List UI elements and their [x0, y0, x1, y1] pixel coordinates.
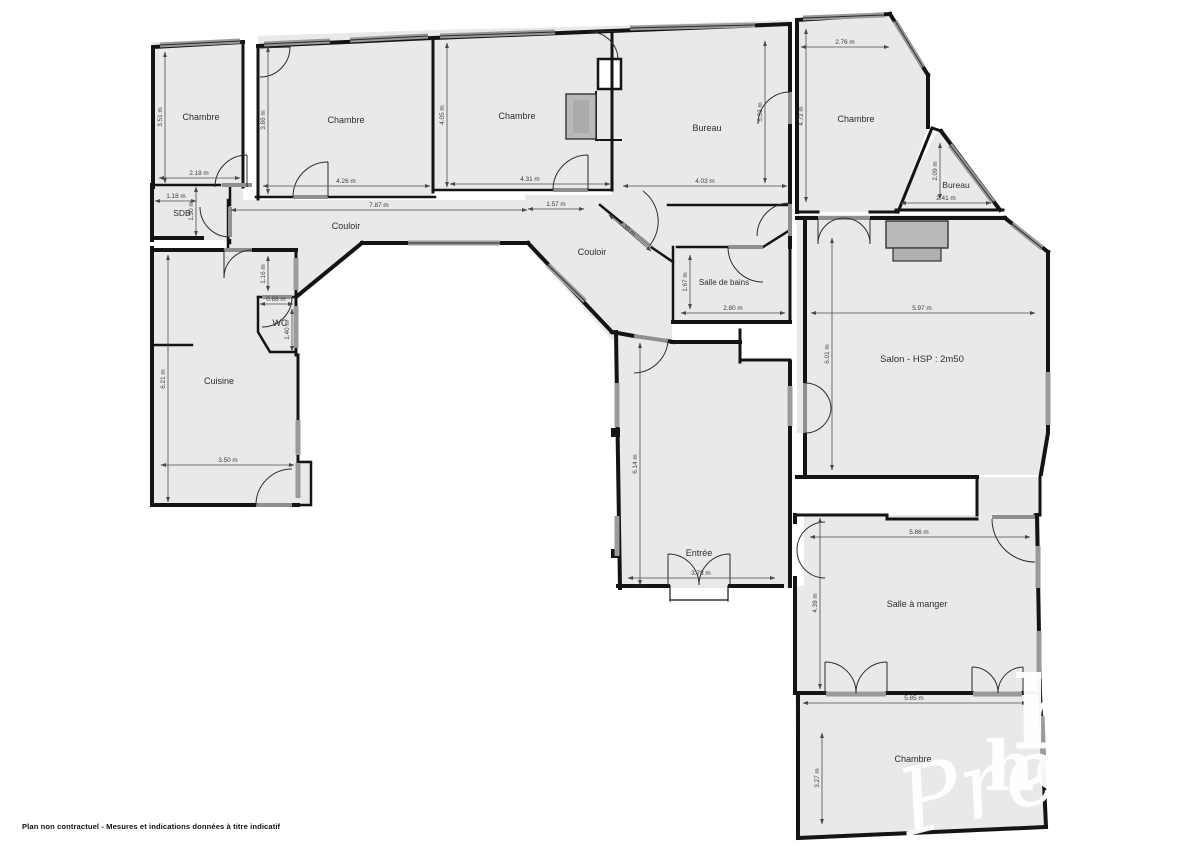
dimension-label: 4.31 m	[520, 176, 540, 183]
room-label: Bureau	[692, 123, 721, 133]
room-label: Cuisine	[204, 376, 234, 386]
room-label: Salon - HSP : 2m50	[880, 354, 964, 365]
dimension-label: 2.41 m	[936, 195, 956, 202]
dimension-label: 2.18 m	[189, 170, 209, 177]
dimension-label: 3.78 m	[691, 570, 711, 577]
room-label: Chambre	[498, 111, 535, 121]
dimension-label: 1.57 m	[546, 201, 566, 208]
dimension-label: 6.01 m	[824, 344, 831, 364]
room-label: Couloir	[578, 247, 607, 257]
floor-plan-svg: 3.51 m2.18 m1.18 m1.30 m3.86 m4.26 m7.87…	[0, 0, 1200, 848]
dimension-label: 5.85 m	[904, 695, 924, 702]
dimension-label: 1.16 m	[260, 264, 267, 284]
floor-plan-page: 3.51 m2.18 m1.18 m1.30 m3.86 m4.26 m7.87…	[0, 0, 1200, 848]
fireplace-salon	[886, 221, 948, 261]
dimension-label: 3.27 m	[814, 768, 821, 788]
room-label: SDB	[173, 208, 191, 218]
room-label: Salle de bains	[699, 278, 749, 287]
room-label: Entrée	[686, 548, 713, 558]
dimension-label: 2.76 m	[835, 39, 855, 46]
room-label: Bureau	[942, 180, 970, 190]
dimension-label: 3.50 m	[218, 457, 238, 464]
dimension-label: 5.33 m	[757, 102, 764, 122]
dimension-label: 2.09 m	[932, 161, 939, 181]
dimension-label: 1.18 m	[166, 193, 186, 200]
room-label: WC	[273, 318, 288, 328]
dimension-label: 3.51 m	[157, 107, 164, 127]
dimension-label: 4.05 m	[439, 105, 446, 125]
dimension-label: 4.72 m	[798, 106, 805, 126]
dimension-label: 4.26 m	[336, 178, 356, 185]
dimension-label: 4.39 m	[812, 593, 819, 613]
room-label: Chambre	[327, 115, 364, 125]
dimension-label: 7.87 m	[369, 202, 389, 209]
dimension-label: 5.97 m	[912, 305, 932, 312]
room-label: Couloir	[332, 221, 361, 231]
room-label: Salle à manger	[887, 599, 948, 609]
floor-fills	[152, 13, 1048, 838]
disclaimer-text: Plan non contractuel - Mesures et indica…	[22, 822, 280, 831]
dimension-label: 4.03 m	[695, 178, 715, 185]
dimension-label: 1.67 m	[682, 272, 689, 292]
dimension-label: 6.21 m	[160, 369, 167, 389]
dimension-label: 5.86 m	[909, 529, 929, 536]
dimension-label: 0.88 m	[266, 296, 286, 303]
dimension-label: 2.80 m	[723, 305, 743, 312]
room-label: Chambre	[182, 112, 219, 122]
room-label: Chambre	[837, 114, 874, 124]
dimension-label: 3.86 m	[260, 110, 267, 130]
fireplace-chambre3	[566, 94, 596, 139]
dimension-label: 6.14 m	[632, 454, 639, 474]
